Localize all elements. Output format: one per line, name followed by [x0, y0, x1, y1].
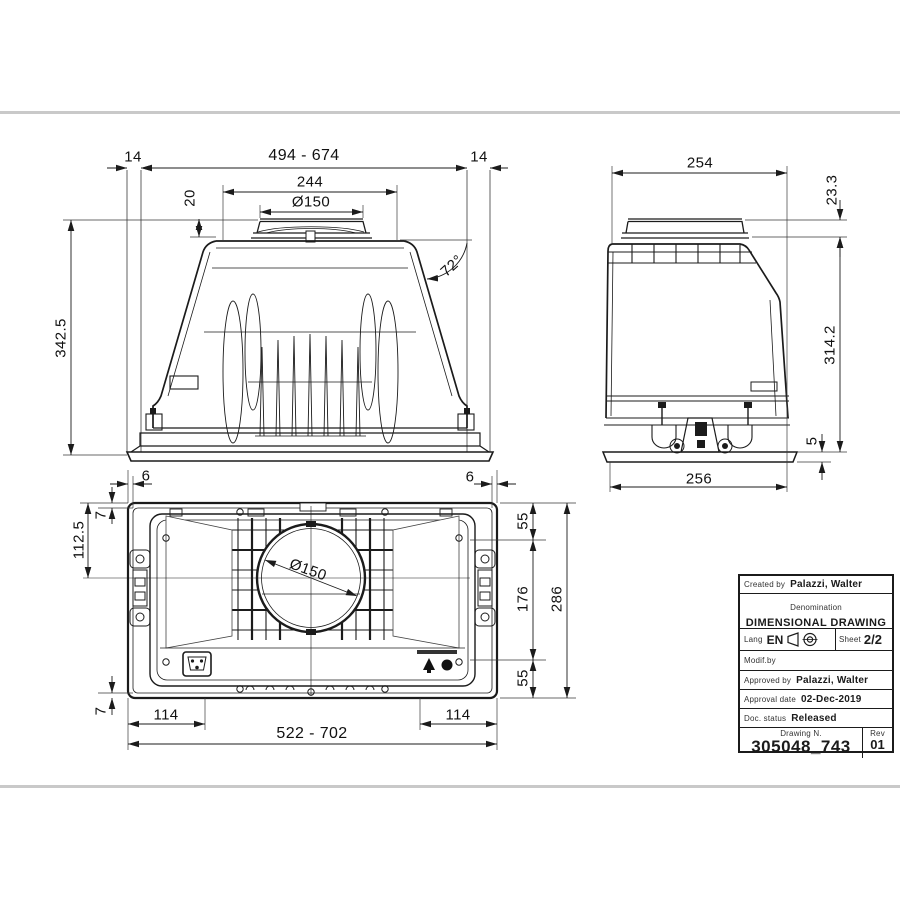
lang-cell: Lang EN [740, 629, 836, 650]
created-by-value: Palazzi, Walter [790, 579, 862, 590]
created-by-label: Created by [744, 580, 785, 589]
title-block-lang-sheet-row: Lang EN Sheet 2/2 [740, 629, 892, 651]
dim-front-total-height: 342.5 [54, 318, 69, 358]
drawing-number-cell: Drawing N. 305048_743 [740, 728, 863, 758]
dimension-lines [71, 166, 847, 750]
dim-front-duct-diameter: Ø150 [292, 195, 330, 210]
dim-plan-duct-center-offset: 112.5 [72, 521, 87, 559]
approval-date-value: 02-Dec-2019 [801, 694, 862, 705]
dim-plan-edge-right: 6 [466, 470, 475, 485]
dim-plan-bracket-right: 114 [445, 708, 470, 723]
side-view [603, 219, 797, 462]
title-block-approval-date-row: Approval date 02-Dec-2019 [740, 690, 892, 709]
spade-symbol-icon [423, 658, 435, 673]
dim-front-width-range: 494 - 674 [268, 148, 339, 164]
approved-by-label: Approved by [744, 676, 791, 685]
sheet-value: 2/2 [864, 632, 882, 647]
dim-plan-rim-bottom: 7 [94, 707, 109, 716]
dim-plan-margin-bottom: 55 [516, 669, 531, 687]
dimensional-drawing-page: 14 494 - 674 14 244 Ø150 20 72° 342.5 25… [0, 0, 900, 900]
title-block: Created by Palazzi, Walter Denomination … [738, 574, 894, 753]
dim-side-top-width: 254 [687, 156, 713, 171]
rev-cell: Rev 01 [863, 728, 892, 758]
dim-plan-hinge-pitch: 176 [516, 586, 531, 612]
dim-plan-margin-top: 55 [516, 512, 531, 530]
dim-plan-bracket-left: 114 [153, 708, 178, 723]
dim-front-overhang-right: 14 [470, 150, 488, 165]
dim-plan-rim-top: 7 [94, 511, 109, 520]
dim-front-overhang-left: 14 [124, 150, 142, 165]
rating-label [417, 650, 457, 654]
dim-plan-edge-left: 6 [142, 469, 151, 484]
drawing-lineart [0, 0, 900, 900]
dim-side-collar-height: 23.3 [825, 175, 840, 206]
dim-side-bottom-width: 256 [686, 472, 712, 487]
sheet-cell: Sheet 2/2 [836, 629, 892, 650]
first-angle-projection-icon [787, 632, 819, 647]
front-view [63, 170, 493, 461]
dim-front-top-panel-width: 244 [297, 175, 323, 190]
denomination-value: DIMENSIONAL DRAWING [744, 617, 888, 629]
dim-side-body-height: 314.2 [823, 325, 838, 365]
title-block-drawing-number-row: Drawing N. 305048_743 Rev 01 [740, 728, 892, 758]
circle-symbol-icon [442, 660, 453, 671]
doc-status-label: Doc. status [744, 714, 786, 723]
sheet-label: Sheet [839, 635, 861, 644]
dim-front-collar-height: 20 [183, 189, 198, 207]
dim-plan-depth: 286 [550, 586, 565, 612]
lang-value: EN [767, 633, 784, 647]
title-block-doc-status-row: Doc. status Released [740, 709, 892, 728]
drawing-number-value: 305048_743 [740, 738, 862, 755]
title-block-created-by-row: Created by Palazzi, Walter [740, 576, 892, 594]
title-block-modif-row: Modif.by [740, 651, 892, 671]
doc-status-value: Released [791, 713, 837, 724]
dim-side-flange-gap: 5 [805, 437, 820, 446]
approval-date-label: Approval date [744, 695, 796, 704]
plan-view [83, 503, 497, 698]
dim-plan-width-range: 522 - 702 [276, 726, 347, 742]
denomination-label: Denomination [790, 603, 842, 612]
modif-by-label: Modif.by [744, 656, 776, 665]
title-block-denomination-row: Denomination DIMENSIONAL DRAWING [740, 594, 892, 629]
title-block-approved-row: Approved by Palazzi, Walter [740, 671, 892, 690]
lang-label: Lang [744, 635, 763, 644]
approved-by-value: Palazzi, Walter [796, 675, 868, 686]
power-inlet-icon [183, 652, 211, 676]
rev-value: 01 [863, 738, 892, 751]
